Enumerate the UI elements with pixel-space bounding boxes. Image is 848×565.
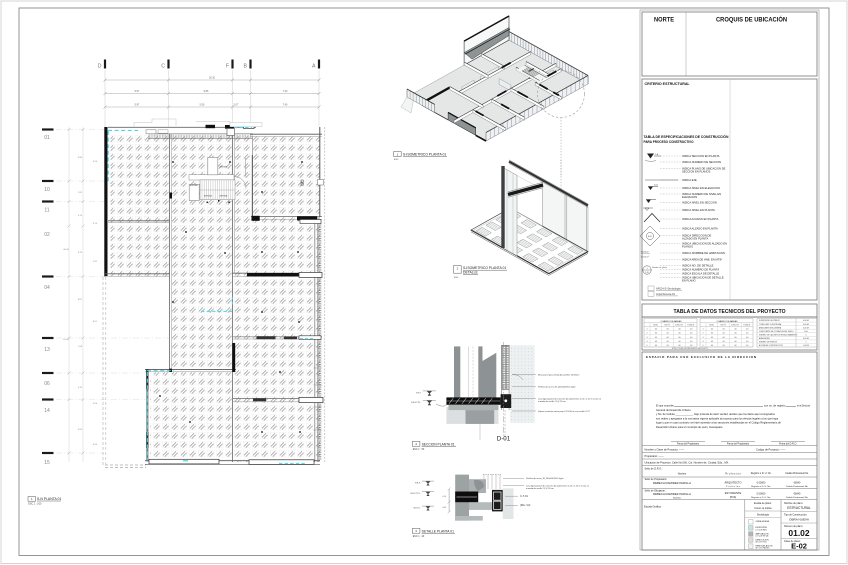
svg-text:13: 13	[44, 347, 50, 353]
svg-text:5: 5	[646, 345, 647, 347]
svg-text:(MA- V2): (MA- V2)	[520, 503, 531, 507]
svg-text:5.97: 5.97	[135, 90, 140, 93]
svg-text:00: 00	[667, 337, 669, 339]
svg-text:66040: 66040	[794, 482, 801, 485]
svg-text:INDICA EJE: INDICA EJE	[682, 178, 697, 182]
svg-text:Escala de plano:: Escala de plano:	[754, 502, 772, 505]
svg-text:01: 01	[44, 135, 50, 141]
svg-text:ESC 1 : 20: ESC 1 : 20	[413, 535, 425, 538]
svg-text:40.46: 40.46	[63, 249, 69, 251]
svg-text:NIVEL: NIVEL	[653, 325, 658, 327]
svg-text:N.P.T.: N.P.T.	[416, 392, 421, 394]
svg-text:S-ISOMETRICO PLANTA 01: S-ISOMETRICO PLANTA 01	[403, 153, 446, 157]
svg-text:NUMERO DE NIVELES: NUMERO DE NIVELES	[759, 342, 778, 344]
svg-text:Cédula Profesional No.: Cédula Profesional No.	[786, 485, 809, 488]
svg-text:NOTA: TODAS LAS MEDIDAS ESTAN: NOTA: TODAS LAS MEDIDAS ESTAN EN MTS.	[672, 347, 709, 350]
svg-text:REBECA RAMIREZ PADILLA: REBECA RAMIREZ PADILLA	[653, 481, 691, 485]
svg-text:1:20: 1:20	[645, 272, 648, 274]
svg-text:Nombre: Nombre	[641, 251, 650, 254]
svg-text:INDICA NIVEL EN SECCION: INDICA NIVEL EN SECCION	[682, 201, 717, 205]
svg-text:00: 00	[690, 341, 692, 343]
svg-text:E-02: E-02	[791, 542, 807, 551]
svg-text:00: 00	[746, 345, 748, 347]
svg-text:CRITERIO ESTRUCTURAL: CRITERIO ESTRUCTURAL	[645, 82, 691, 86]
svg-text:00: 00	[711, 333, 713, 335]
svg-text:INDICA SECCION EN PLANTA: INDICA SECCION EN PLANTA	[682, 154, 720, 158]
svg-text:CROQUIS DE UBICACIÓN: CROQUIS DE UBICACIÓN	[716, 16, 787, 24]
svg-text:(LO QUE SE VA): (LO QUE SE VA)	[756, 535, 769, 538]
svg-text:1: 1	[646, 329, 647, 331]
svg-text:Nombre de planta: Nombre de planta	[652, 266, 668, 269]
svg-text:00: 00	[723, 337, 725, 339]
svg-text:(BY DIST PADRE): (BY DIST PADRE)	[756, 547, 770, 550]
svg-text:SECCION EN PLANOS: SECCION EN PLANOS	[682, 170, 711, 174]
svg-text:OBRA NUEVA: OBRA NUEVA	[756, 520, 770, 523]
svg-text:2: 2	[646, 333, 647, 335]
svg-text:00: 00	[678, 345, 680, 347]
svg-text:Nombre de plano:: Nombre de plano:	[784, 502, 803, 505]
svg-text:5.90: 5.90	[200, 104, 205, 107]
svg-text:Losa ligera/panel de concreto: Losa ligera/panel de concreto de poliest…	[538, 398, 602, 401]
svg-text:00: 00	[734, 341, 736, 343]
svg-text:Perfiles de acero_W_200x100/26: Perfiles de acero_W_200x100/26.5 kg/m	[538, 386, 576, 389]
svg-text:son reales y apegados a la no: son reales y apegados a la normativa vig…	[656, 416, 779, 420]
svg-text:TOTAL DESP. CONSTRUIDA: TOTAL DESP. CONSTRUIDA	[759, 323, 782, 326]
svg-text:00: 00	[667, 333, 669, 335]
svg-text:5.97: 5.97	[135, 104, 140, 107]
svg-text:01.02: 01.02	[788, 528, 810, 538]
svg-text:Cédula Profesional No.: Cédula Profesional No.	[786, 496, 809, 499]
svg-text:2: 2	[702, 333, 703, 335]
svg-text:Losa ligera/panel de concreto: Losa ligera/panel de concreto de poliest…	[526, 484, 590, 487]
svg-text:66040: 66040	[794, 493, 801, 496]
svg-text:11: 11	[44, 208, 49, 214]
svg-text:04: 04	[44, 285, 50, 291]
svg-text:A-01: A-01	[648, 235, 652, 238]
svg-text:4: 4	[702, 341, 703, 343]
svg-text:00: 00	[746, 333, 748, 335]
svg-text:General de Desarrollo Urbano.: General de Desarrollo Urbano.	[656, 408, 692, 412]
svg-text:Desarrollo Urbano para el muni: Desarrollo Urbano para el municipio de L…	[656, 425, 723, 429]
svg-text:OBRA NUEVA: OBRA NUEVA	[789, 518, 810, 522]
svg-text:0.00: 0.00	[804, 331, 808, 333]
svg-text:ESC: ESC	[394, 159, 399, 161]
svg-text:P r o f e s i ó n: P r o f e s i ó n	[725, 473, 741, 476]
svg-text:NORTE: NORTE	[654, 17, 674, 24]
svg-text:NUMERO DE CAJONES DE ESTACIONA: NUMERO DE CAJONES DE ESTACIONAMIENTO	[759, 333, 798, 336]
svg-text:3: 3	[646, 337, 647, 339]
svg-text:7.40: 7.40	[283, 104, 288, 107]
svg-text:P r o f e s i ó n: P r o f e s i ó n	[726, 485, 741, 488]
svg-text:0.00 M²: 0.00 M²	[803, 337, 809, 340]
svg-text:Registro o D. U. No.: Registro o D. U. No.	[751, 485, 771, 488]
svg-text:Escala Gráfica: Escala Gráfica	[644, 505, 661, 509]
svg-text:NIVEL: NIVEL	[709, 325, 714, 327]
svg-text:ARRIBA: ARRIBA	[204, 195, 212, 198]
svg-text:ARRIBA: ARRIBA	[220, 166, 228, 169]
svg-text:15: 15	[44, 460, 50, 466]
svg-text:7.40: 7.40	[283, 90, 288, 93]
svg-text:00: 00	[655, 345, 657, 347]
svg-text:00: 00	[734, 337, 736, 339]
svg-text:00: 00	[711, 341, 713, 343]
svg-text:00: 00	[734, 333, 736, 335]
svg-text:0.00000: 0.00000	[757, 482, 766, 485]
svg-text:INDICA NUMERO DE PLANTA: INDICA NUMERO DE PLANTA	[682, 268, 719, 272]
svg-text:S-ISOMETRICO PLANTA 01: S-ISOMETRICO PLANTA 01	[463, 266, 506, 270]
svg-text:lugar y que en caso contrario: lugar y que en caso contrario me haré ac…	[656, 421, 781, 425]
svg-text:3: 3	[702, 337, 703, 339]
svg-text:(LO QUE HAY): (LO QUE HAY)	[756, 528, 768, 531]
svg-text:D: D	[98, 64, 102, 70]
svg-text:N.E.S.T.P.L.: N.E.S.T.P.L.	[410, 493, 421, 495]
svg-text:06: 06	[44, 381, 50, 387]
svg-text:00: 00	[690, 329, 692, 331]
svg-text:ESC 1 : 50: ESC 1 : 50	[413, 448, 425, 451]
svg-text:B: B	[244, 64, 248, 70]
svg-text:00: 00	[655, 329, 657, 331]
svg-text:00: 00	[734, 329, 736, 331]
svg-text:ESC 1 : 100: ESC 1 : 100	[28, 503, 42, 506]
svg-text:Vapore cemento arena prop 2:1/: Vapore cemento arena prop 2:1/5.00cm con…	[538, 410, 591, 413]
svg-text:00: 00	[690, 345, 692, 347]
svg-text:A: A	[312, 64, 316, 70]
svg-text:0.10: 0.10	[443, 496, 447, 498]
svg-text:Propietario: ------: Propietario: ------	[645, 454, 664, 458]
svg-text:Firma del Propietario: Firma del Propietario	[677, 443, 700, 446]
svg-text:ARCH-S-Simbologia: ARCH-S-Simbologia	[656, 287, 681, 291]
svg-text:Codigo de Proyecto: ------: Codigo de Proyecto: ------	[756, 448, 786, 452]
svg-text:SECCION PLANTA 01: SECCION PLANTA 01	[422, 442, 455, 446]
svg-text:Registro o D. U. No.: Registro o D. U. No.	[751, 472, 772, 475]
svg-text:10: 10	[44, 187, 50, 193]
svg-text:ARRIBA: ARRIBA	[190, 184, 198, 187]
svg-text:0.00 M: 0.00 M	[803, 345, 809, 347]
svg-text:Firma del D.R.O.: Firma del D.R.O.	[779, 443, 797, 446]
svg-text:00: 00	[723, 341, 725, 343]
svg-text:TABLA DE DATOS TECNICOS DEL PR: TABLA DE DATOS TECNICOS DEL PROYECTO	[674, 309, 786, 315]
svg-text:ALTURA DE CONSTRUCCION: ALTURA DE CONSTRUCCION	[759, 344, 783, 347]
svg-text:Nombre: Nombre	[673, 497, 682, 500]
svg-text:INDICA NUMERO DE SECCION: INDICA NUMERO DE SECCION	[682, 160, 721, 164]
svg-text:C: C	[161, 64, 165, 70]
svg-text:N.E.S.: N.E.S.	[415, 483, 421, 485]
svg-text:AREA LIBRE DESCUBIERTA: AREA LIBRE DESCUBIERTA	[759, 326, 782, 329]
svg-text:ARRIBA: ARRIBA	[220, 195, 228, 198]
svg-text:1: 1	[806, 342, 807, 344]
svg-text:y No. de Cédula ____________: y No. de Cédula ____________, bajo prote…	[656, 412, 776, 416]
svg-text:COEFICIENTE DE OCUPACION DEL S: COEFICIENTE DE OCUPACION DEL SUELO	[759, 330, 794, 333]
svg-text:Firma del Propietario: Firma del Propietario	[727, 443, 750, 446]
svg-text:00: 00	[667, 341, 669, 343]
svg-text:00: 00	[678, 337, 680, 339]
svg-text:Tipo de Construcción:: Tipo de Construcción:	[784, 514, 808, 517]
svg-text:PLANOS: PLANOS	[682, 245, 693, 249]
svg-text:INDICA ALZADO EN PLANTA: INDICA ALZADO EN PLANTA	[682, 227, 718, 231]
svg-text:14: 14	[44, 408, 50, 414]
svg-text:CUADRO DE AREAS: CUADRO DE AREAS	[716, 320, 738, 323]
svg-text:Registro o D. U. No.: Registro o D. U. No.	[751, 496, 771, 499]
svg-text:00: 00	[723, 329, 725, 331]
svg-text:INDICA NIVEL EN PLANTA: INDICA NIVEL EN PLANTA	[682, 208, 715, 212]
svg-text:INDICA ESCALA DE DETALLE: INDICA ESCALA DE DETALLE	[682, 272, 719, 276]
svg-text:0.00000: 0.00000	[757, 493, 766, 496]
svg-text:Simbología: Simbología	[757, 514, 770, 517]
svg-text:AREA VERDE: AREA VERDE	[759, 337, 771, 340]
svg-text:N.E.S.T.: N.E.S.T.	[414, 508, 421, 510]
svg-text:INDICA NIVEL EN ELEVACION: INDICA NIVEL EN ELEVACION	[682, 186, 720, 190]
svg-text:ELEVACION: ELEVACION	[682, 195, 697, 199]
svg-text:00: 00	[667, 329, 669, 331]
svg-text:00: 00	[690, 337, 692, 339]
svg-text:0.05: 0.05	[443, 507, 447, 509]
svg-text:Sello de D.R.O.:: Sello de D.R.O.:	[645, 468, 663, 471]
svg-text:(PAS): (PAS)	[730, 496, 736, 499]
svg-text:0.00 M²: 0.00 M²	[803, 326, 809, 329]
svg-text:00: 00	[711, 337, 713, 339]
svg-text:00: 00	[746, 337, 748, 339]
svg-text:Ubicación de Proyecto: Calle N: Ubicación de Proyecto: Calle No.000, Col…	[645, 461, 730, 465]
svg-text:4: 4	[646, 341, 647, 343]
svg-text:Cédula Profesional No.: Cédula Profesional No.	[785, 472, 809, 475]
svg-text:N.E.S.T.P.L.: N.E.S.T.P.L.	[411, 402, 422, 404]
svg-text:C-T-01: C-T-01	[520, 494, 528, 498]
svg-text:00: 00	[711, 329, 713, 331]
svg-text:SUPERFICIE DEL PREDIO: SUPERFICIE DEL PREDIO	[759, 320, 780, 322]
svg-text:Como se indica: Como se indica	[754, 507, 772, 510]
svg-text:ALZADO EN PLANTA: ALZADO EN PLANTA	[682, 237, 708, 241]
svg-text:Muro panel yeso_Estandar perfi: Muro panel yeso_Estandar perfiles 16/ 60…	[538, 373, 580, 376]
svg-text:Perfiles de acero_W_200x100/26: Perfiles de acero_W_200x100/26.5 kg/m	[526, 477, 564, 480]
svg-text:00: 00	[678, 341, 680, 343]
svg-text:INDICA NO. DE DETALLE: INDICA NO. DE DETALLE	[682, 264, 714, 268]
svg-text:00: 00	[746, 329, 748, 331]
svg-text:00: 00	[678, 333, 680, 335]
svg-text:ESTUDIANTE: ESTUDIANTE	[725, 491, 742, 495]
svg-text:1: 1	[702, 329, 703, 331]
svg-text:El que suscribe: El que suscribe	[656, 404, 674, 408]
svg-text:00: 00	[734, 345, 736, 347]
svg-text:0: 0	[806, 334, 807, 336]
svg-text:ArquiTectura-01: ArquiTectura-01	[656, 292, 675, 296]
svg-text:00: 00	[723, 333, 725, 335]
svg-text:Nombre y Clase de Proyecto: -: Nombre y Clase de Proyecto: ------	[645, 448, 685, 452]
svg-text:TABLA DE ESPECIFICACIONES DE: TABLA DE ESPECIFICACIONES DE CONSTRUCCIÓ…	[644, 134, 729, 139]
svg-text:D-01: D-01	[497, 436, 511, 443]
svg-text:0.00 M²: 0.00 M²	[803, 319, 809, 322]
svg-text:en la Dirección: en la Dirección	[797, 404, 810, 408]
svg-text:armado de varilla #3 @ 30 cm: armado de varilla #3 @ 30 cm	[526, 487, 554, 490]
svg-text:ARQUITECTO: ARQUITECTO	[725, 481, 742, 485]
svg-text:00: 00	[723, 345, 725, 347]
svg-text:ESTRUCTURAL: ESTRUCTURAL	[787, 506, 811, 510]
svg-text:CUADRO DE AREAS: CUADRO DE AREAS	[660, 320, 682, 323]
svg-text:INDICA NOMBRE DE HABITACION: INDICA NOMBRE DE HABITACION	[682, 251, 725, 255]
svg-text:00: 00	[711, 345, 713, 347]
svg-text:00: 00	[667, 345, 669, 347]
svg-text:ESPACIO PARA USO EXCLUSIVO DE: ESPACIO PARA USO EXCLUSIVO DE LA DIRECCI…	[646, 355, 757, 359]
svg-text:00: 00	[746, 341, 748, 343]
svg-text:(EX DIST P20): (EX DIST P20)	[756, 542, 768, 544]
svg-text:0.00 M²: 0.00 M²	[803, 323, 809, 326]
svg-text:5: 5	[702, 345, 703, 347]
svg-text:00: 00	[678, 329, 680, 331]
svg-text:INDICA AREA DE HAB. EN MTS²: INDICA AREA DE HAB. EN MTS²	[682, 258, 722, 262]
svg-text:INDICA ACCESO EN PLANTA: INDICA ACCESO EN PLANTA	[682, 217, 719, 221]
svg-text:30.10: 30.10	[209, 77, 216, 80]
svg-text:Nombre: Nombre	[678, 473, 687, 476]
svg-text:DETALLE PLANTA 01: DETALLE PLANTA 01	[422, 529, 454, 533]
svg-text:00: 00	[655, 333, 657, 335]
svg-text:REBECA RAMIREZ PADILLA: REBECA RAMIREZ PADILLA	[653, 492, 691, 496]
svg-text:DETALLE: DETALLE	[463, 271, 479, 275]
svg-text:PARA PROCESO CONSTRUCTIVO: PARA PROCESO CONSTRUCTIVO	[644, 140, 694, 144]
svg-text:02: 02	[44, 232, 50, 238]
svg-text:16.01: 16.01	[63, 339, 69, 341]
svg-text:F: F	[226, 64, 229, 70]
svg-text:S-N PLANTA 01: S-N PLANTA 01	[37, 497, 61, 501]
svg-text:00: 00	[655, 337, 657, 339]
svg-text:ESC: ESC	[454, 277, 459, 279]
svg-text:EN PLANO: EN PLANO	[682, 279, 696, 283]
svg-text:con no. de registro: con no. de registro	[764, 404, 786, 408]
svg-text:00: 00	[655, 341, 657, 343]
svg-text:2.07: 2.07	[234, 104, 239, 107]
svg-text:00: 00	[690, 333, 692, 335]
svg-text:00.00 m²: 00.00 m²	[641, 256, 649, 259]
svg-text:9.86: 9.86	[204, 90, 209, 93]
svg-text:armado de varilla #3 @ 30 cm: armado de varilla #3 @ 30 cm	[538, 400, 566, 403]
